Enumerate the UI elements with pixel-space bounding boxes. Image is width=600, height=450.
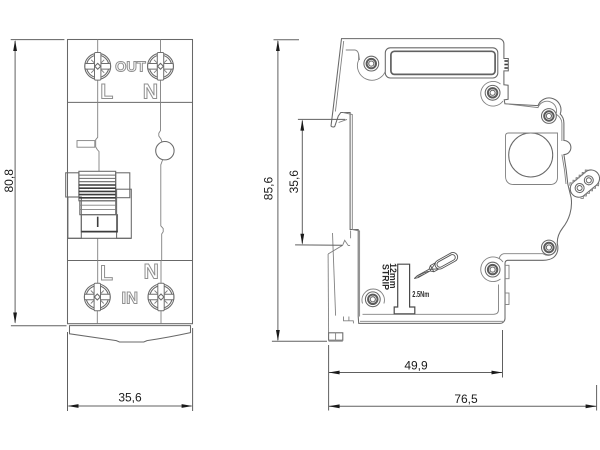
svg-text:N: N: [144, 261, 159, 284]
svg-text:80,8: 80,8: [2, 169, 16, 193]
svg-text:35,6: 35,6: [118, 391, 142, 405]
svg-text:OUT: OUT: [115, 60, 146, 76]
svg-text:L: L: [100, 80, 113, 103]
svg-text:85,6: 85,6: [262, 176, 276, 200]
svg-text:L: L: [100, 262, 113, 285]
svg-text:IN: IN: [122, 290, 139, 308]
svg-text:2.5Nm: 2.5Nm: [412, 290, 429, 299]
svg-text:76,5: 76,5: [454, 392, 478, 406]
svg-text:STRIP: STRIP: [380, 264, 390, 290]
svg-text:N: N: [143, 80, 158, 103]
svg-text:49,9: 49,9: [404, 359, 428, 373]
svg-text:35,6: 35,6: [287, 170, 301, 194]
